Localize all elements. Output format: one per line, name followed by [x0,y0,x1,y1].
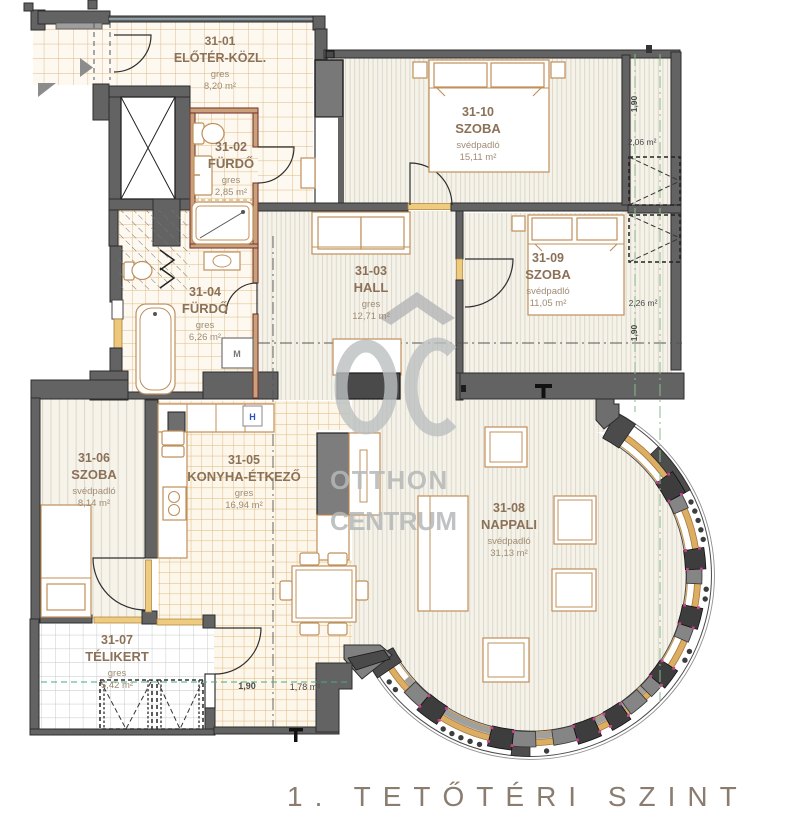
svg-text:5,42 m²: 5,42 m² [101,680,133,691]
svg-text:1. TETŐTÉRI SZINT: 1. TETŐTÉRI SZINT [287,781,749,812]
svg-text:2,06 m²: 2,06 m² [628,137,657,147]
svg-text:1,90: 1,90 [238,681,256,691]
svg-text:gres: gres [222,175,241,186]
svg-text:31-09: 31-09 [532,251,564,265]
svg-text:31-01: 31-01 [205,34,236,48]
svg-text:svédpadló: svédpadló [487,536,530,547]
svg-text:gres: gres [108,668,127,679]
svg-text:FÜRDŐ: FÜRDŐ [182,301,228,316]
svg-text:2,85 m²: 2,85 m² [215,187,247,198]
svg-text:NAPPALI: NAPPALI [481,517,537,532]
svg-text:1,90: 1,90 [629,324,639,341]
svg-text:gres: gres [211,69,230,80]
svg-text:svédpadló: svédpadló [456,140,499,151]
svg-text:KONYHA-ÉTKEZŐ: KONYHA-ÉTKEZŐ [187,469,300,484]
svg-text:31-02: 31-02 [215,140,247,154]
svg-text:HALL: HALL [354,280,389,295]
svg-text:SZOBA: SZOBA [525,267,571,282]
svg-text:CENTRUM: CENTRUM [330,506,457,536]
svg-text:8,14 m²: 8,14 m² [78,498,110,509]
svg-text:12,71 m²: 12,71 m² [352,311,390,322]
svg-text:8,20 m²: 8,20 m² [204,81,236,92]
svg-text:31-07: 31-07 [101,633,133,647]
svg-text:31-08: 31-08 [493,501,525,515]
svg-text:gres: gres [196,320,215,331]
svg-text:gres: gres [235,488,254,499]
svg-text:FÜRDŐ: FÜRDŐ [208,156,254,171]
svg-text:SZOBA: SZOBA [455,121,501,136]
svg-text:15,11 m²: 15,11 m² [460,152,497,163]
svg-text:1,78 m²: 1,78 m² [290,682,321,692]
svg-text:31-04: 31-04 [189,285,221,299]
svg-text:TÉLIKERT: TÉLIKERT [85,649,149,664]
svg-text:16,94 m²: 16,94 m² [225,500,263,511]
svg-text:SZOBA: SZOBA [71,467,117,482]
svg-text:svédpadló: svédpadló [72,486,115,497]
svg-text:svédpadló: svédpadló [526,286,569,297]
svg-text:2,26 m²: 2,26 m² [629,298,658,308]
svg-text:ELŐTÉR-KÖZL.: ELŐTÉR-KÖZL. [174,50,266,65]
svg-text:gres: gres [362,299,381,310]
svg-text:31-05: 31-05 [228,453,260,467]
svg-text:1,90: 1,90 [629,95,639,112]
svg-text:31-10: 31-10 [462,105,494,119]
svg-text:11,05 m²: 11,05 m² [530,298,567,309]
svg-text:6,26 m²: 6,26 m² [189,332,221,343]
svg-text:OTTHON: OTTHON [330,465,449,495]
svg-text:31-06: 31-06 [78,451,110,465]
svg-text:M: M [233,349,241,359]
svg-text:H: H [249,412,256,422]
svg-text:31,13 m²: 31,13 m² [490,548,528,559]
svg-text:31-03: 31-03 [355,264,387,278]
